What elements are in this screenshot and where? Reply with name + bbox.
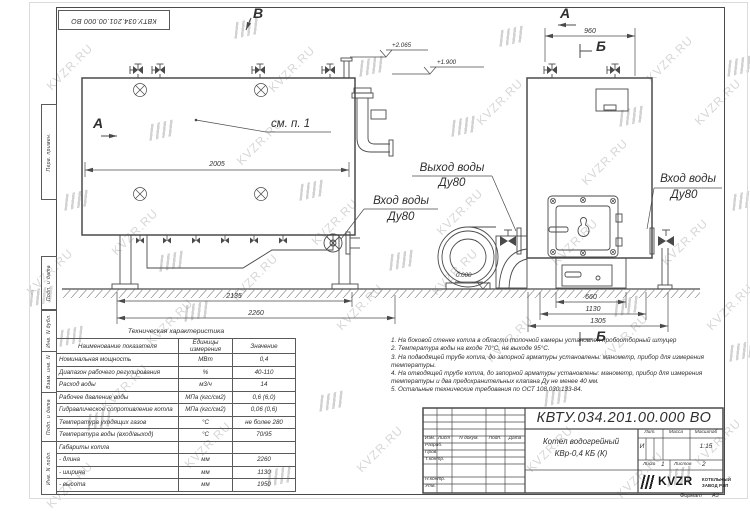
format-label: Формат bbox=[680, 494, 702, 500]
sheet-label: Лист bbox=[643, 463, 655, 468]
table-row: - длинамм2260 bbox=[57, 454, 296, 467]
title-block-designation: КВТУ.034.201.00.000 ВО bbox=[537, 411, 712, 426]
sig-razrab: Разраб. bbox=[425, 444, 442, 449]
note-3: 3. На подводящей трубе котла, до запорно… bbox=[391, 354, 724, 370]
elevation-floor: 0.000 bbox=[456, 273, 471, 279]
table-row: - высотамм1950 bbox=[57, 479, 296, 492]
kvzr-logo-text: KVZR bbox=[658, 474, 693, 488]
col-izm: Изм. bbox=[425, 437, 435, 442]
inlet-water2-dn: Ду80 bbox=[671, 190, 698, 202]
note-1: 1. На боковой стенке котла в области топ… bbox=[391, 337, 724, 345]
table-row: - ширинамм1130 bbox=[57, 466, 296, 479]
table-row: Температура уходящих газов°Сне более 280 bbox=[57, 416, 296, 429]
table-row: Температура воды (вход/выход)°С70/95 bbox=[57, 429, 296, 442]
dim-960: 960 bbox=[584, 28, 596, 35]
dim-660: 660 bbox=[585, 294, 597, 301]
sig-nkontr: Н.контр. bbox=[425, 478, 445, 483]
sig-prov: Пров. bbox=[425, 451, 438, 456]
kvzr-logo-sub2: ЗАВОД РЭП bbox=[702, 483, 729, 488]
stamp-perv-primen: Перв. примен. bbox=[41, 104, 57, 200]
see-note-callout: см. п. 1 bbox=[271, 119, 310, 131]
inlet-water2-label: Вход воды bbox=[660, 174, 716, 186]
dim-2260: 2260 bbox=[248, 310, 264, 317]
sig-tkontr: Т.контр. bbox=[425, 458, 444, 463]
product-name-line1: Котел водогрейный bbox=[543, 438, 619, 446]
doc-number-top: КВТУ.034.201.00.000 ВО bbox=[71, 17, 157, 24]
elevation-top: +2.065 bbox=[392, 43, 411, 49]
table-row: Номинальная мощностьМВт0,4 bbox=[57, 354, 296, 367]
sheet-value: 1 bbox=[661, 462, 665, 469]
drawing-sheet: { "sheet": { "doc_number_top": "КВТУ.034… bbox=[0, 0, 750, 500]
scale-label: Масштаб bbox=[695, 431, 717, 436]
stamp-podp-data-2: Подп. и дата bbox=[41, 392, 57, 442]
stamp-inv-dubl: Инв. N дубл. bbox=[41, 310, 57, 352]
table-row: Диапазон рабочего регулирования%40-110 bbox=[57, 366, 296, 379]
dim-1305: 1305 bbox=[590, 318, 606, 325]
sheets-value: 2 bbox=[702, 462, 706, 469]
note-4: 4. На отводящей трубе котла, до запорной… bbox=[391, 370, 724, 386]
elevation-boiler-top: +1.900 bbox=[437, 60, 456, 66]
technical-notes: 1. На боковой стенке котла в области топ… bbox=[391, 337, 724, 395]
stamp-podp-data-1: Подп. и дата bbox=[41, 256, 57, 310]
table-row: Габариты котла bbox=[57, 441, 296, 454]
section-label-a-left: А bbox=[93, 116, 103, 130]
outlet-water-dn: Ду80 bbox=[439, 178, 466, 190]
product-name-line2: КВр-0,4 КБ (К) bbox=[555, 450, 608, 458]
col-data: Дата bbox=[509, 437, 522, 442]
section-label-v: В bbox=[253, 6, 263, 20]
tech-table-title: Техническая характеристика bbox=[128, 329, 224, 336]
format-value: А3 bbox=[712, 494, 719, 500]
col-ndokum: N докум. bbox=[459, 437, 478, 442]
table-row: Рабочее давление водыМПа (кгс/см2)0,6 (6… bbox=[57, 391, 296, 404]
section-label-b-top: Б bbox=[596, 39, 606, 53]
dim-2135: 2135 bbox=[226, 293, 242, 300]
dim-2005: 2005 bbox=[209, 161, 225, 168]
scale-value: 1:15 bbox=[700, 444, 713, 451]
sheets-label: Листов bbox=[674, 463, 691, 468]
sig-utv: Утв. bbox=[425, 485, 436, 490]
mass-label: Масса bbox=[669, 431, 683, 436]
col-list: Лист bbox=[438, 437, 450, 442]
stamp-inv-podl: Инв. N подл. bbox=[41, 441, 57, 495]
col-podp: Подп. bbox=[489, 437, 502, 442]
inlet-water-label: Вход воды bbox=[373, 196, 429, 208]
lit-value: И bbox=[640, 444, 645, 451]
section-label-a-top: А bbox=[560, 6, 570, 20]
outlet-water-label: Выход воды bbox=[420, 163, 485, 175]
stamp-vzam-inv: Взам. инв. N bbox=[41, 351, 57, 393]
lit-label: Лит. bbox=[644, 431, 655, 436]
kvzr-logo-sub1: КОТЕЛЬНЫЙ bbox=[702, 477, 731, 482]
tech-table: Наименование показателя Единицы измерени… bbox=[56, 338, 296, 492]
table-row: Расход водым3/ч14 bbox=[57, 379, 296, 392]
note-2: 2. Температура воды на входе 70°С, на вы… bbox=[391, 345, 724, 353]
dim-1130: 1130 bbox=[585, 306, 600, 313]
inlet-water-dn: Ду80 bbox=[388, 212, 415, 224]
table-row: Гидравлическое сопротивление котлаМПа (к… bbox=[57, 404, 296, 417]
doc-number-top-box: КВТУ.034.201.00.000 ВО bbox=[58, 10, 170, 30]
note-5: 5. Остальные технические требования по О… bbox=[391, 386, 724, 394]
tech-table-header: Наименование показателя Единицы измерени… bbox=[57, 339, 296, 354]
